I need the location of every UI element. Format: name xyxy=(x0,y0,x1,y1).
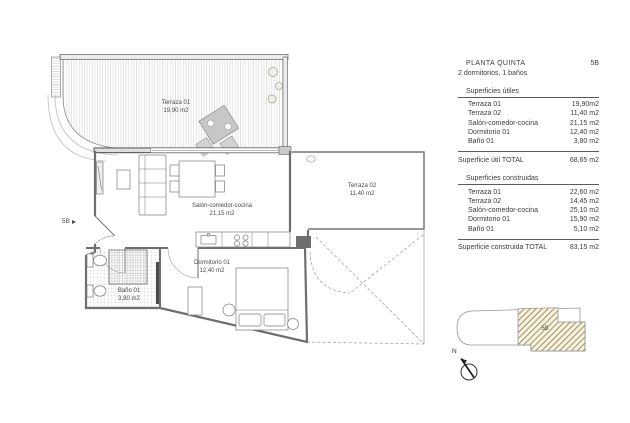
row-value: 22,60 m2 xyxy=(570,189,599,196)
row-label: Dormitorio 01 xyxy=(468,129,510,136)
row-value: 14,45 m2 xyxy=(570,198,599,205)
table-row: Terraza 02 14,45 m2 xyxy=(458,197,599,206)
row-value: 5,10 m2 xyxy=(574,226,599,233)
useful-surfaces-heading: Superficies útiles xyxy=(458,88,599,99)
room-name: Terraza 02 xyxy=(322,182,402,190)
useful-surfaces-table: Terraza 01 19,90m2 Terraza 02 11,40 m2 S… xyxy=(458,100,599,146)
row-label: Salón-comedor-cocina xyxy=(468,207,538,214)
row-label: Salón-comedor-cocina xyxy=(468,120,538,127)
total-value: 83,15 m2 xyxy=(570,244,599,251)
terrace-2-light xyxy=(307,156,315,162)
row-value: 11,40 m2 xyxy=(570,110,599,117)
room-label-salon: Salón-comedor-cocina 21,15 m2 xyxy=(170,202,274,218)
table-row: Baño 01 3,80 m2 xyxy=(458,137,599,146)
entry-unit-label: 5B xyxy=(62,218,76,225)
room-area: 12,40 m2 xyxy=(172,267,252,275)
toilet-tank xyxy=(87,254,93,267)
table-row: Terraza 01 22,60 m2 xyxy=(458,187,599,196)
room-label-bano-01: Baño 01 3,80 m2 xyxy=(100,287,158,303)
room-label-dormitorio-01: Dormitorio 01 12,40 m2 xyxy=(172,259,252,275)
built-total-row: Superficie construida TOTAL 83,15 m2 xyxy=(458,239,599,252)
room-name: Salón-comedor-cocina xyxy=(170,202,274,210)
dining-table xyxy=(170,161,225,197)
north-label: N xyxy=(452,348,457,355)
table-row: Salón-comedor-cocina 25,10 m2 xyxy=(458,206,599,215)
salon-top-wall-solid xyxy=(95,148,151,152)
total-label: Superficie construida TOTAL xyxy=(458,244,547,251)
row-label: Baño 01 xyxy=(468,226,494,233)
room-area: 19,90 m2 xyxy=(136,107,216,115)
sofa xyxy=(139,155,166,215)
bed-pillow-right xyxy=(264,314,285,326)
unit-code: 5B xyxy=(590,60,599,67)
row-label: Dormitorio 01 xyxy=(468,216,510,223)
side-table xyxy=(117,170,130,189)
row-value: 21,15 m2 xyxy=(570,120,599,127)
total-label: Superficie útil TOTAL xyxy=(458,157,524,164)
total-value: 68,65 m2 xyxy=(570,157,599,164)
kitchen-counter xyxy=(196,232,290,247)
entry-door xyxy=(95,216,115,244)
table-row: Terraza 01 19,90m2 xyxy=(458,100,599,109)
toilet-bowl xyxy=(94,255,107,265)
row-value: 3,80 m2 xyxy=(574,138,599,145)
row-value: 15,90 m2 xyxy=(570,216,599,223)
row-label: Terraza 01 xyxy=(468,189,501,196)
row-value: 19,90m2 xyxy=(572,101,599,108)
bedroom-dresser xyxy=(188,287,202,315)
row-value: 12,40 m2 xyxy=(570,129,599,136)
table-row: Salón-comedor-cocina 21,15 m2 xyxy=(458,119,599,128)
useful-total-row: Superficie útil TOTAL 68,65 m2 xyxy=(458,151,599,164)
bed-pillow-left xyxy=(239,314,261,326)
sink-pedestal xyxy=(87,285,93,297)
terrace-right-wall xyxy=(283,57,288,149)
row-label: Terraza 01 xyxy=(468,101,501,108)
room-area: 3,80 m2 xyxy=(100,295,158,303)
row-value: 25,10 m2 xyxy=(570,207,599,214)
surfaces-panel: PLANTA QUINTA 5B 2 dormitorios, 1 baños … xyxy=(458,60,599,251)
void-region xyxy=(307,229,424,344)
north-arrow-icon xyxy=(461,359,477,381)
built-surfaces-heading: Superficies construidas xyxy=(458,175,599,186)
entry-unit-text: 5B xyxy=(62,218,70,225)
room-name: Baño 01 xyxy=(100,287,158,295)
nightstand-left xyxy=(223,304,235,316)
keyplan-unit-label: 5B xyxy=(534,326,556,332)
room-area: 21,15 m2 xyxy=(170,210,274,218)
table-row: Baño 01 5,10 m2 xyxy=(458,225,599,234)
wall-block xyxy=(296,236,311,248)
row-label: Baño 01 xyxy=(468,138,494,145)
row-label: Terraza 02 xyxy=(468,110,501,117)
kitchen-sink xyxy=(201,236,216,245)
nightstand-right xyxy=(288,319,299,330)
table-row: Terraza 02 11,40 m2 xyxy=(458,109,599,118)
table-row: Dormitorio 01 15,90 m2 xyxy=(458,215,599,224)
terrace-top-wall xyxy=(60,55,288,60)
built-surfaces-table: Terraza 01 22,60 m2 Terraza 02 14,45 m2 … xyxy=(458,187,599,233)
terrace-left-strip xyxy=(52,57,61,97)
room-area: 11,40 m2 xyxy=(322,190,402,198)
room-label-terraza-02: Terraza 02 11,40 m2 xyxy=(322,182,402,198)
room-name: Terraza 01 xyxy=(136,99,216,107)
room-label-terraza-01: Terraza 01 19,90 m2 xyxy=(136,99,216,115)
row-label: Terraza 02 xyxy=(468,198,501,205)
table-row: Dormitorio 01 12,40 m2 xyxy=(458,128,599,137)
sheet-title: PLANTA QUINTA xyxy=(466,60,525,67)
shower-tray xyxy=(109,250,147,284)
sheet-subtitle: 2 dormitorios, 1 baños xyxy=(458,70,599,77)
floorplan-sheet: Terraza 01 19,90 m2 Terraza 02 11,40 m2 … xyxy=(0,0,630,423)
entry-direction-icon xyxy=(72,220,76,224)
room-name: Dormitorio 01 xyxy=(172,259,252,267)
